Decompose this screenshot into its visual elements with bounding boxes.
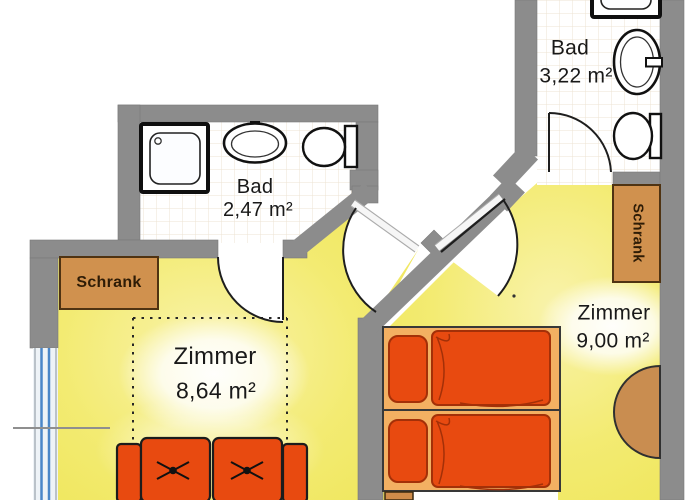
floor-plan: Bad 2,47 m² Bad 3,22 m² Zimmer 8,64 m² Z…: [0, 0, 700, 500]
shower-right: [592, 0, 660, 17]
closet-right-label: Schrank: [630, 203, 645, 262]
double-bed: [383, 327, 560, 500]
sofa: [117, 438, 307, 500]
shower-left: [141, 124, 208, 192]
blanket: [432, 331, 550, 405]
toilet-left: [303, 126, 357, 167]
pillow: [389, 420, 427, 482]
room-left-area: 8,64 m²: [176, 380, 256, 403]
window: [33, 348, 58, 500]
room-right-area: 9,00 m²: [576, 331, 649, 352]
sink-right: [614, 30, 662, 94]
bed-foot-gap: [413, 492, 558, 500]
bath-right-area: 3,22 m²: [539, 66, 612, 87]
bath-right-label: Bad: [551, 38, 589, 59]
toilet-right: [614, 113, 661, 159]
room-left-label: Zimmer: [173, 345, 256, 369]
sink-left: [224, 122, 286, 163]
bath-left-area: 2,47 m²: [223, 200, 293, 220]
room-right-label: Zimmer: [578, 303, 651, 324]
bath-left-label: Bad: [237, 177, 274, 197]
nightstand: [385, 492, 413, 500]
blanket: [432, 415, 550, 487]
closet-left-label: Schrank: [76, 275, 141, 291]
pillow: [389, 336, 427, 402]
